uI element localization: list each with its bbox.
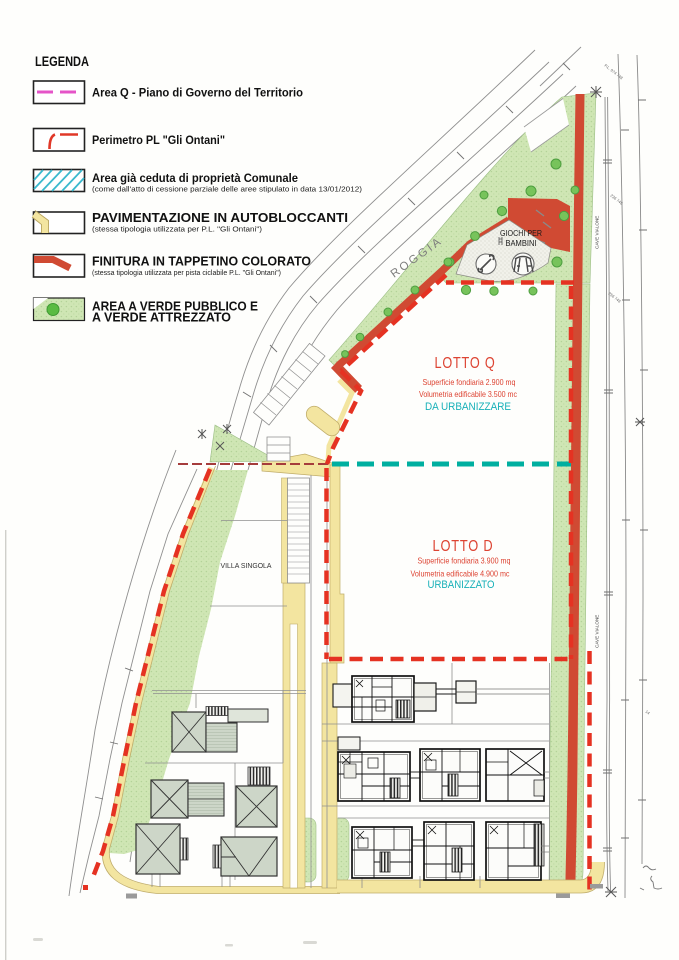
svg-text:Area Q - Piano di Governo del: Area Q - Piano di Governo del Territorio: [92, 88, 303, 100]
svg-text:CAVE VIALONE: CAVE VIALONE: [595, 216, 600, 249]
svg-text:A VERDE ATTREZZATO: A VERDE ATTREZZATO: [92, 311, 231, 325]
svg-text:BAMBINI: BAMBINI: [506, 239, 537, 248]
svg-text:LOTTO D: LOTTO D: [433, 538, 494, 555]
svg-text:Area già ceduta di proprietà C: Area già ceduta di proprietà Comunale: [92, 173, 298, 185]
svg-text:Volumetria edificabile 4.900: Volumetria edificabile 4.900 mc: [411, 569, 511, 579]
svg-text:Volumetria edificabile 3.500: Volumetria edificabile 3.500 mc: [419, 389, 518, 399]
svg-text:DA URBANIZZARE: DA URBANIZZARE: [425, 401, 511, 413]
svg-text:LOTTO Q: LOTTO Q: [435, 355, 496, 372]
svg-text:URBANIZZATO: URBANIZZATO: [428, 579, 495, 591]
svg-text:(stessa tipologia utilizzata p: (stessa tipologia utilizzata per pista c…: [92, 270, 281, 277]
svg-text:GIOCHI PER: GIOCHI PER: [500, 229, 542, 238]
svg-text:(come dall'atto di cessione pa: (come dall'atto di cessione parziale del…: [92, 187, 362, 194]
svg-text:CAVE VIALONE: CAVE VIALONE: [595, 615, 600, 648]
svg-text:Superficie fondiaria 2.900 mq: Superficie fondiaria 2.900 mq: [423, 377, 516, 387]
svg-text:(stessa tipologia utilizzata p: (stessa tipologia utilizzata per P.L. "G…: [92, 227, 262, 234]
svg-text:PAVIMENTAZIONE IN AUTOBLOCCANT: PAVIMENTAZIONE IN AUTOBLOCCANTI: [92, 211, 348, 225]
svg-text:Perimetro PL "Gli Ontani": Perimetro PL "Gli Ontani": [92, 135, 225, 147]
svg-text:Superficie fondiaria 3.900 mq: Superficie fondiaria 3.900 mq: [418, 556, 511, 566]
svg-text:FINITURA IN TAPPETINO COLORATO: FINITURA IN TAPPETINO COLORATO: [92, 255, 311, 269]
svg-text:LEGENDA: LEGENDA: [35, 53, 89, 69]
svg-text:VILLA SINGOLA: VILLA SINGOLA: [221, 561, 272, 570]
